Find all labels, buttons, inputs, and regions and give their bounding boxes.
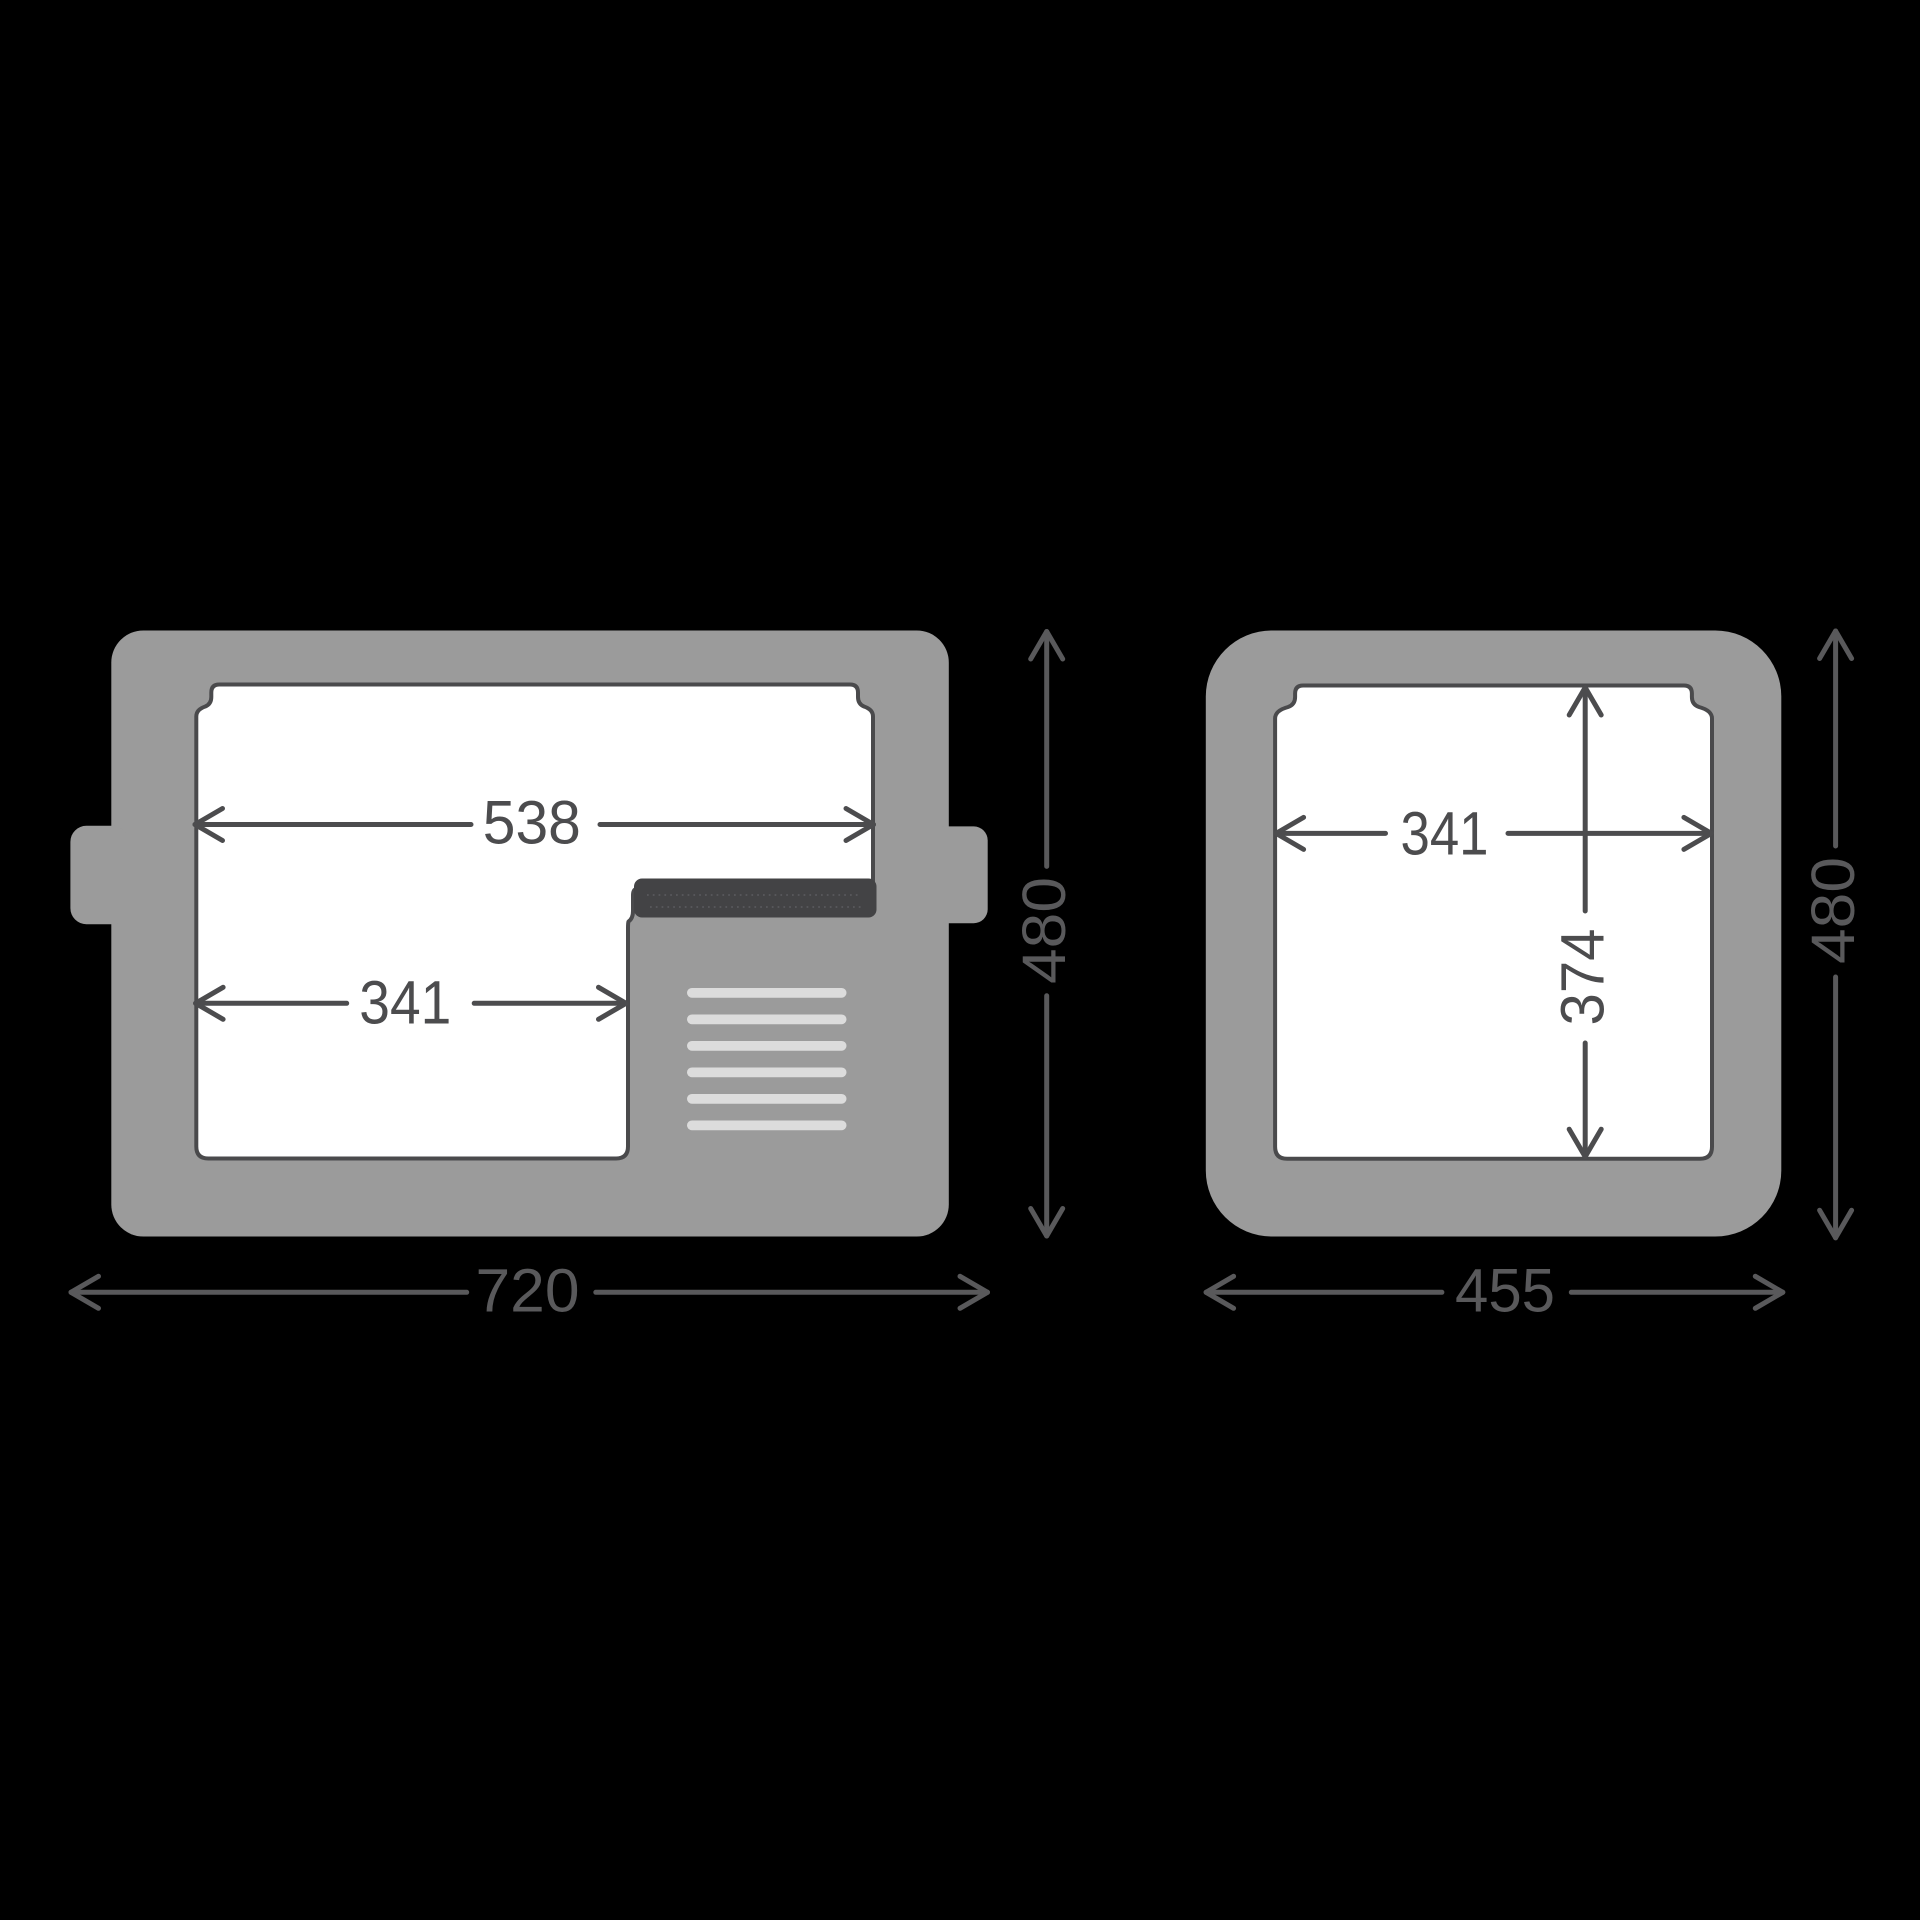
svg-text:480: 480 (1799, 857, 1867, 964)
svg-text:374: 374 (1549, 929, 1617, 1026)
svg-text:341: 341 (1401, 800, 1489, 868)
svg-text:538: 538 (483, 789, 581, 857)
svg-text:720: 720 (476, 1257, 580, 1325)
svg-text:341: 341 (359, 968, 451, 1036)
svg-text:455: 455 (1455, 1257, 1555, 1325)
svg-text:480: 480 (1010, 877, 1078, 984)
